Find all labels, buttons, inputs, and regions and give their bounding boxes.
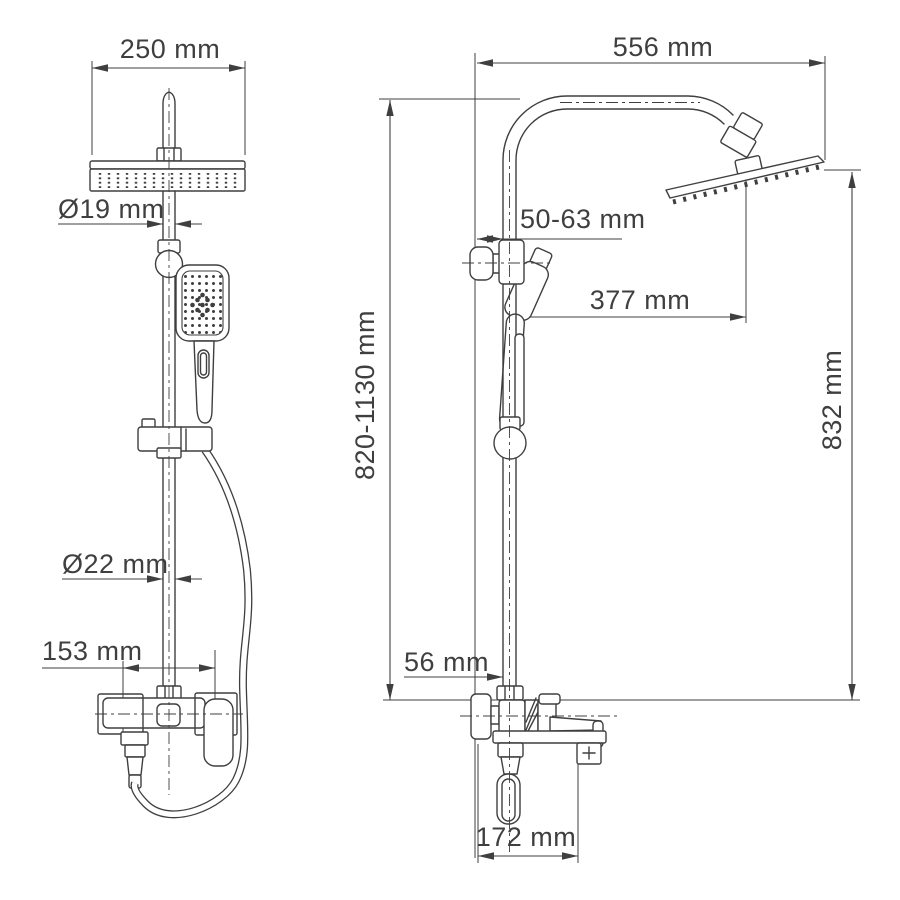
mixer-side bbox=[471, 686, 606, 824]
dim-label-column-to-head: 377 mm bbox=[590, 285, 691, 315]
wall-connector bbox=[491, 706, 499, 724]
dim-label-head-drop-height: 832 mm bbox=[817, 350, 847, 451]
bracket-collar bbox=[499, 240, 524, 284]
front-view: 250 mm Ø19 mm Ø22 mm 153 mm bbox=[42, 34, 248, 814]
dim-column-height: 820-1130 mm bbox=[350, 99, 520, 700]
wall-bracket bbox=[470, 240, 524, 284]
dim-label-inlet-spacing: 153 mm bbox=[42, 636, 143, 666]
hand-shower-front bbox=[176, 265, 229, 423]
dim-label-head-pipe-diameter: Ø19 mm bbox=[58, 194, 165, 224]
shelf-plate bbox=[493, 731, 606, 743]
handshower-holder-tube bbox=[497, 774, 520, 824]
dim-head-pipe-diameter: Ø19 mm bbox=[58, 194, 202, 224]
mixer-body-front bbox=[103, 698, 205, 728]
dim-label-arm-span: 556 mm bbox=[613, 32, 714, 62]
dim-wall-to-column: 50-63 mm bbox=[477, 204, 646, 239]
dim-column-diameter: Ø22 mm bbox=[62, 549, 202, 579]
dim-wall-offset-bottom: 56 mm bbox=[404, 647, 503, 677]
rain-head-body bbox=[90, 169, 245, 191]
wall-flange bbox=[471, 694, 491, 739]
dim-label-mixer-depth: 172 mm bbox=[476, 822, 577, 852]
mixer-center-cap bbox=[157, 704, 180, 726]
mode-button bbox=[198, 350, 209, 378]
technical-drawing-page: 250 mm Ø19 mm Ø22 mm 153 mm bbox=[0, 0, 900, 900]
rain-head-front bbox=[90, 92, 245, 191]
mixer-body-side bbox=[499, 700, 525, 733]
shower-system-drawing: 250 mm Ø19 mm Ø22 mm 153 mm bbox=[0, 0, 900, 900]
bracket-knob bbox=[470, 247, 493, 280]
mixer-lever-front bbox=[204, 699, 233, 766]
diverter-top bbox=[121, 732, 148, 745]
dim-column-to-head: 377 mm bbox=[510, 175, 746, 323]
side-view: 556 mm 820-1130 mm 832 mm 50-63 mm 377 m… bbox=[350, 32, 861, 863]
dim-label-wall-offset-bottom: 56 mm bbox=[404, 647, 489, 677]
diverter-mid bbox=[125, 745, 145, 757]
dim-mixer-depth: 172 mm bbox=[476, 744, 578, 863]
head-connector bbox=[720, 110, 765, 174]
dim-label-wall-to-column: 50-63 mm bbox=[520, 204, 646, 234]
column-base-nut-side bbox=[497, 686, 523, 700]
mixer-front bbox=[98, 686, 237, 788]
diverter-side-top bbox=[498, 743, 523, 757]
dim-label-column-diameter: Ø22 mm bbox=[62, 549, 169, 579]
dim-label-head-width: 250 mm bbox=[120, 34, 221, 64]
dim-label-column-height: 820-1130 mm bbox=[350, 310, 380, 480]
diverter-side-cone bbox=[501, 757, 520, 774]
lever-pivot bbox=[539, 694, 560, 704]
dim-head-drop-height: 832 mm bbox=[817, 170, 861, 700]
rain-head-top-plate bbox=[90, 161, 245, 169]
diverter-cone bbox=[127, 757, 143, 775]
